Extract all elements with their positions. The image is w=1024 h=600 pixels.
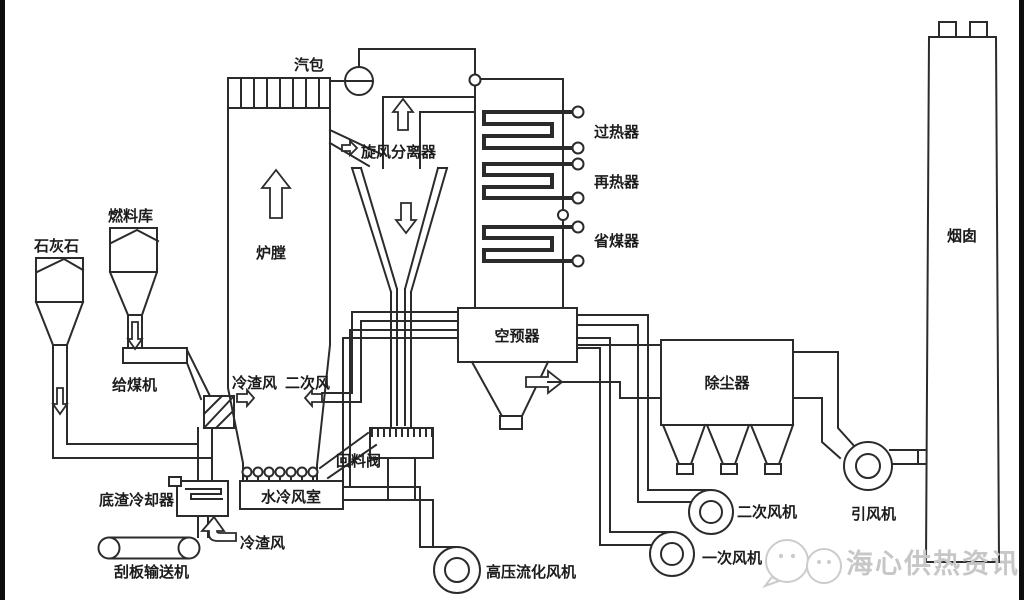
furnace-label: 炉膛 <box>256 244 286 262</box>
coal-feeder-chute <box>198 396 234 481</box>
primary-air-fan <box>650 532 694 576</box>
chimney <box>926 22 999 562</box>
diagram-canvas: 海心供热资讯 汽包 旋风分离器 炉膛 过热器 再热器 省煤器 空预器 除尘器 烟… <box>0 0 1024 600</box>
chimney-label: 烟囱 <box>947 227 977 245</box>
scraper-conveyor-label: 刮板输送机 <box>114 563 189 581</box>
furnace-up-arrow <box>262 170 290 218</box>
cyclone-label: 旋风分离器 <box>360 143 437 161</box>
secondary-air-label: 二次风 <box>285 374 330 392</box>
furnace <box>228 78 330 481</box>
air-preheater <box>458 308 577 429</box>
water-cooled-chamber-label: 水冷风室 <box>261 488 321 506</box>
steam-drum-label: 汽包 <box>294 56 324 74</box>
steam-drum <box>330 49 475 95</box>
boiler-flow-diagram: 海心供热资讯 汽包 旋风分离器 炉膛 过热器 再热器 省煤器 空预器 除尘器 烟… <box>0 0 1024 600</box>
flue-up-arrow <box>393 99 413 130</box>
scraper-conveyor <box>99 538 200 559</box>
air-preheater-label: 空预器 <box>494 327 540 345</box>
reheater-label: 再热器 <box>594 173 640 191</box>
coal-feeder-label: 给煤机 <box>112 376 157 394</box>
secondary-air-fan-label: 二次风机 <box>737 503 797 521</box>
primary-air-fan-label: 一次风机 <box>702 549 762 567</box>
fuel-down-arrow <box>128 322 142 349</box>
cold-slag-air-arrow <box>237 390 254 406</box>
chat-bubble-icon <box>766 540 808 582</box>
fluidizing-nozzles <box>243 468 318 482</box>
return-valve-label: 回料阀 <box>336 452 381 470</box>
dust-collector <box>661 340 793 474</box>
cold-slag-air-upper-label: 冷渣风 <box>232 374 277 392</box>
cyclone-label-arrow <box>342 141 357 155</box>
bottom-slag-cooler-label: 底渣冷却器 <box>99 491 175 509</box>
secondary-air-fan <box>689 490 733 534</box>
convective-backpass <box>470 75 584 311</box>
limestone-down-arrow <box>53 388 67 414</box>
right-edge-bar <box>1019 0 1024 600</box>
left-edge-bar <box>0 0 5 600</box>
hp-fluidizing-fan <box>434 547 480 593</box>
limestone-label: 石灰石 <box>33 237 79 255</box>
fuel-bunker-label: 燃料库 <box>108 207 153 225</box>
fuel-bunker <box>110 228 210 399</box>
dust-collector-label: 除尘器 <box>704 374 750 392</box>
induced-draft-fan <box>793 352 930 490</box>
superheater-label: 过热器 <box>594 123 640 141</box>
chat-bubble-icon <box>807 549 841 583</box>
hp-fluidizing-fan-label: 高压流化风机 <box>486 563 576 581</box>
economizer-label: 省煤器 <box>593 232 640 250</box>
cyclone-down-arrow <box>396 203 416 233</box>
cold-slag-air-lower-label: 冷渣风 <box>240 534 285 552</box>
induced-draft-fan-label: 引风机 <box>851 505 896 523</box>
watermark-text: 海心供热资讯 <box>846 549 1020 579</box>
secondary-air-arrow <box>305 390 322 406</box>
